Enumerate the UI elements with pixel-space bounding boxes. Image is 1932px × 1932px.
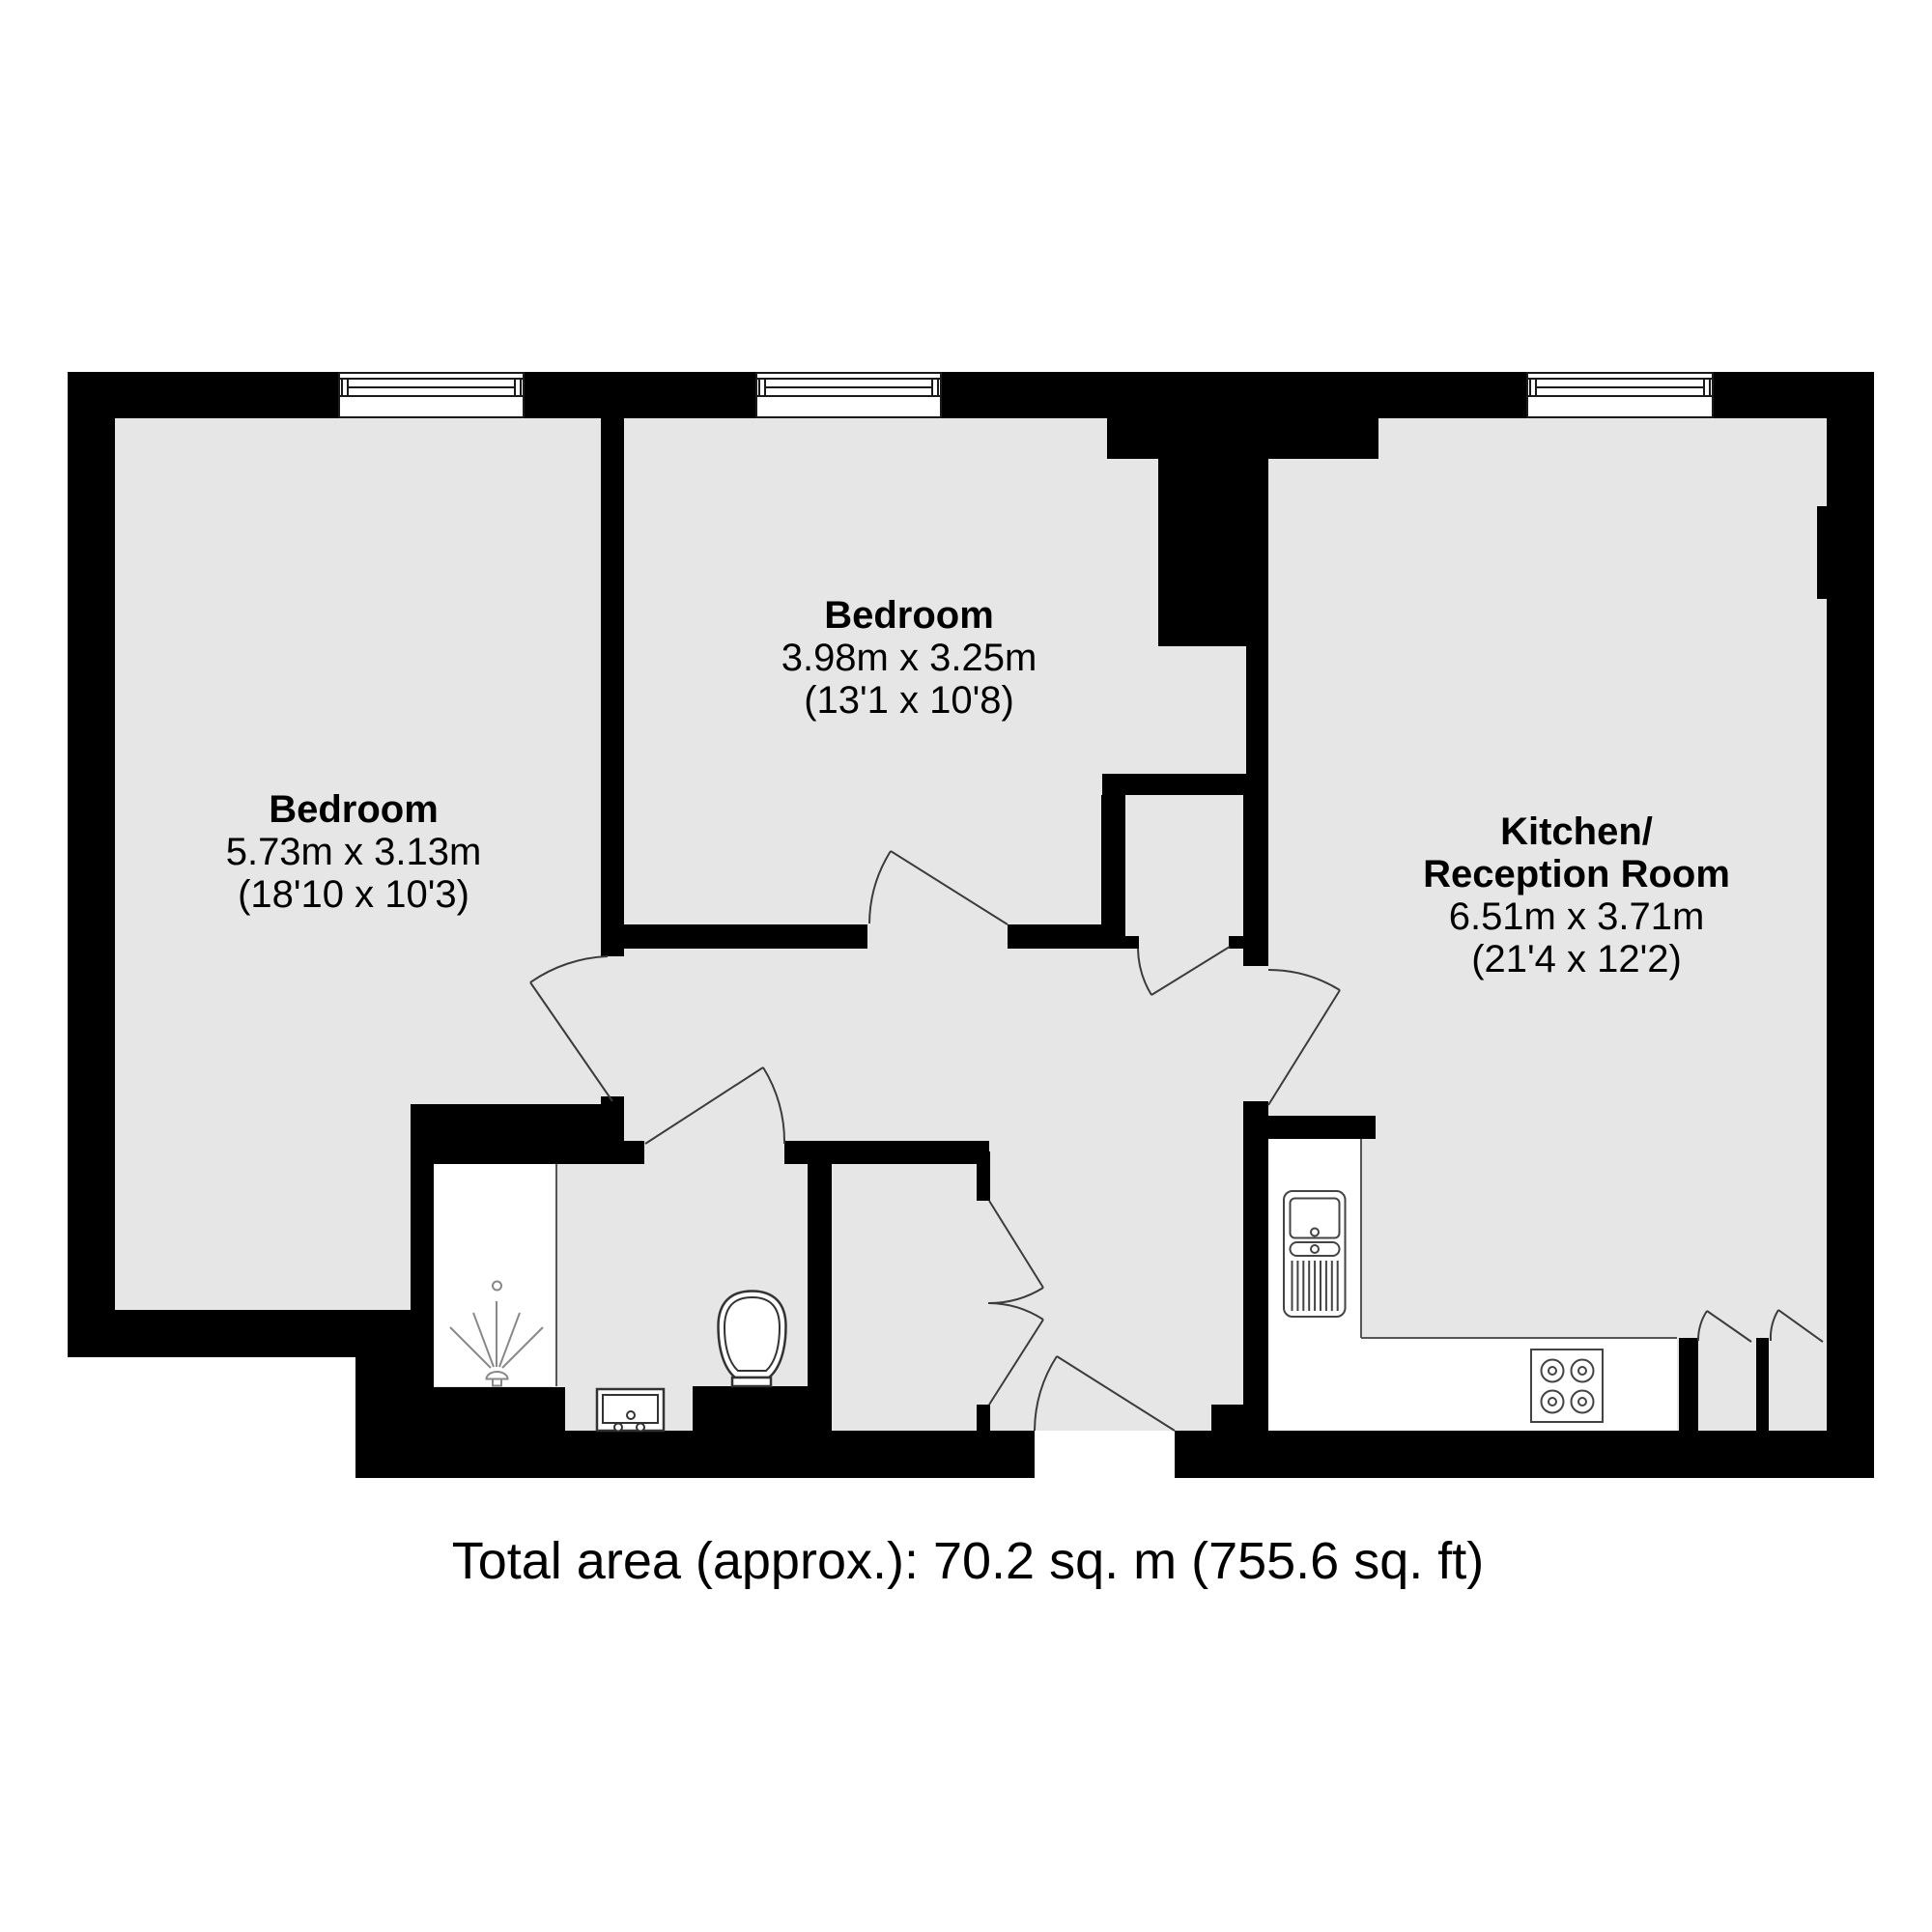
svg-text:6.51m x 3.71m: 6.51m x 3.71m <box>1449 895 1705 938</box>
svg-text:(21'4 x 12'2): (21'4 x 12'2) <box>1471 938 1682 980</box>
svg-text:(13'1 x 10'8): (13'1 x 10'8) <box>804 679 1014 722</box>
svg-text:3.98m x 3.25m: 3.98m x 3.25m <box>781 637 1037 679</box>
svg-text:5.73m x 3.13m: 5.73m x 3.13m <box>226 831 482 873</box>
svg-text:(18'10 x 10'3): (18'10 x 10'3) <box>238 873 469 916</box>
svg-text:Reception Room: Reception Room <box>1423 853 1730 895</box>
svg-text:Kitchen/: Kitchen/ <box>1500 810 1653 853</box>
svg-text:Total area (approx.): 70.2 sq.: Total area (approx.): 70.2 sq. m (755.6 … <box>452 1532 1485 1590</box>
svg-text:Bedroom: Bedroom <box>269 788 439 831</box>
svg-text:Bedroom: Bedroom <box>824 594 994 637</box>
